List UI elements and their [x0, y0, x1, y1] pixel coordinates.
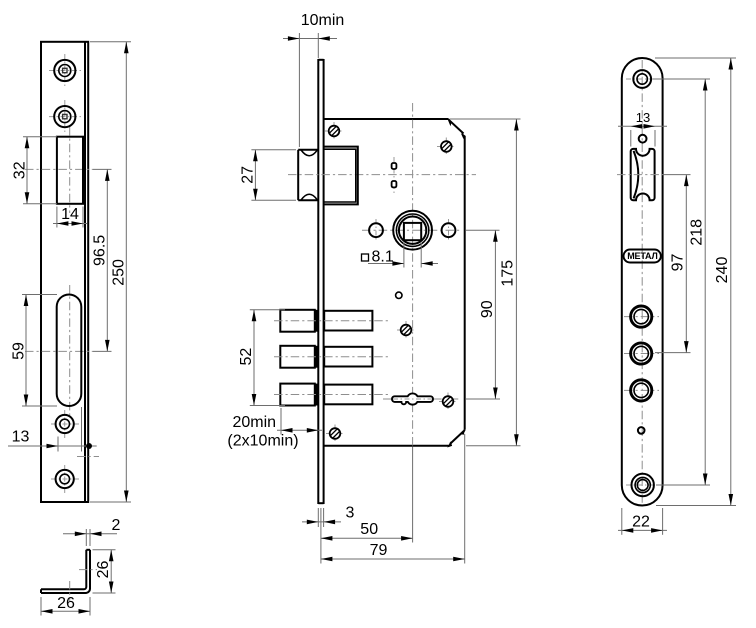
svg-text:240: 240 — [714, 257, 731, 284]
svg-text:218: 218 — [689, 219, 706, 246]
svg-text:(2x10min): (2x10min) — [227, 432, 298, 449]
svg-text:13: 13 — [636, 110, 650, 125]
svg-text:22: 22 — [632, 513, 650, 530]
svg-text:96.5: 96.5 — [91, 235, 108, 266]
svg-text:97: 97 — [670, 254, 687, 272]
svg-text:50: 50 — [360, 521, 378, 538]
svg-text:10min: 10min — [301, 12, 345, 29]
svg-text:52: 52 — [238, 348, 255, 366]
svg-text:59: 59 — [11, 342, 28, 360]
svg-text:2: 2 — [112, 517, 121, 534]
svg-text:90: 90 — [479, 300, 496, 318]
svg-text:14: 14 — [61, 206, 79, 223]
svg-text:79: 79 — [370, 542, 388, 559]
svg-text:8.1: 8.1 — [372, 249, 394, 266]
svg-text:27: 27 — [239, 166, 256, 184]
svg-text:3: 3 — [346, 505, 355, 522]
svg-text:13: 13 — [12, 429, 30, 446]
svg-text:26: 26 — [95, 561, 112, 579]
svg-text:250: 250 — [110, 259, 127, 286]
svg-text:26: 26 — [57, 595, 75, 612]
svg-text:МЕТАЛ: МЕТАЛ — [627, 251, 657, 261]
svg-text:32: 32 — [12, 161, 29, 179]
svg-text:175: 175 — [500, 260, 517, 287]
svg-text:20min: 20min — [233, 414, 277, 431]
